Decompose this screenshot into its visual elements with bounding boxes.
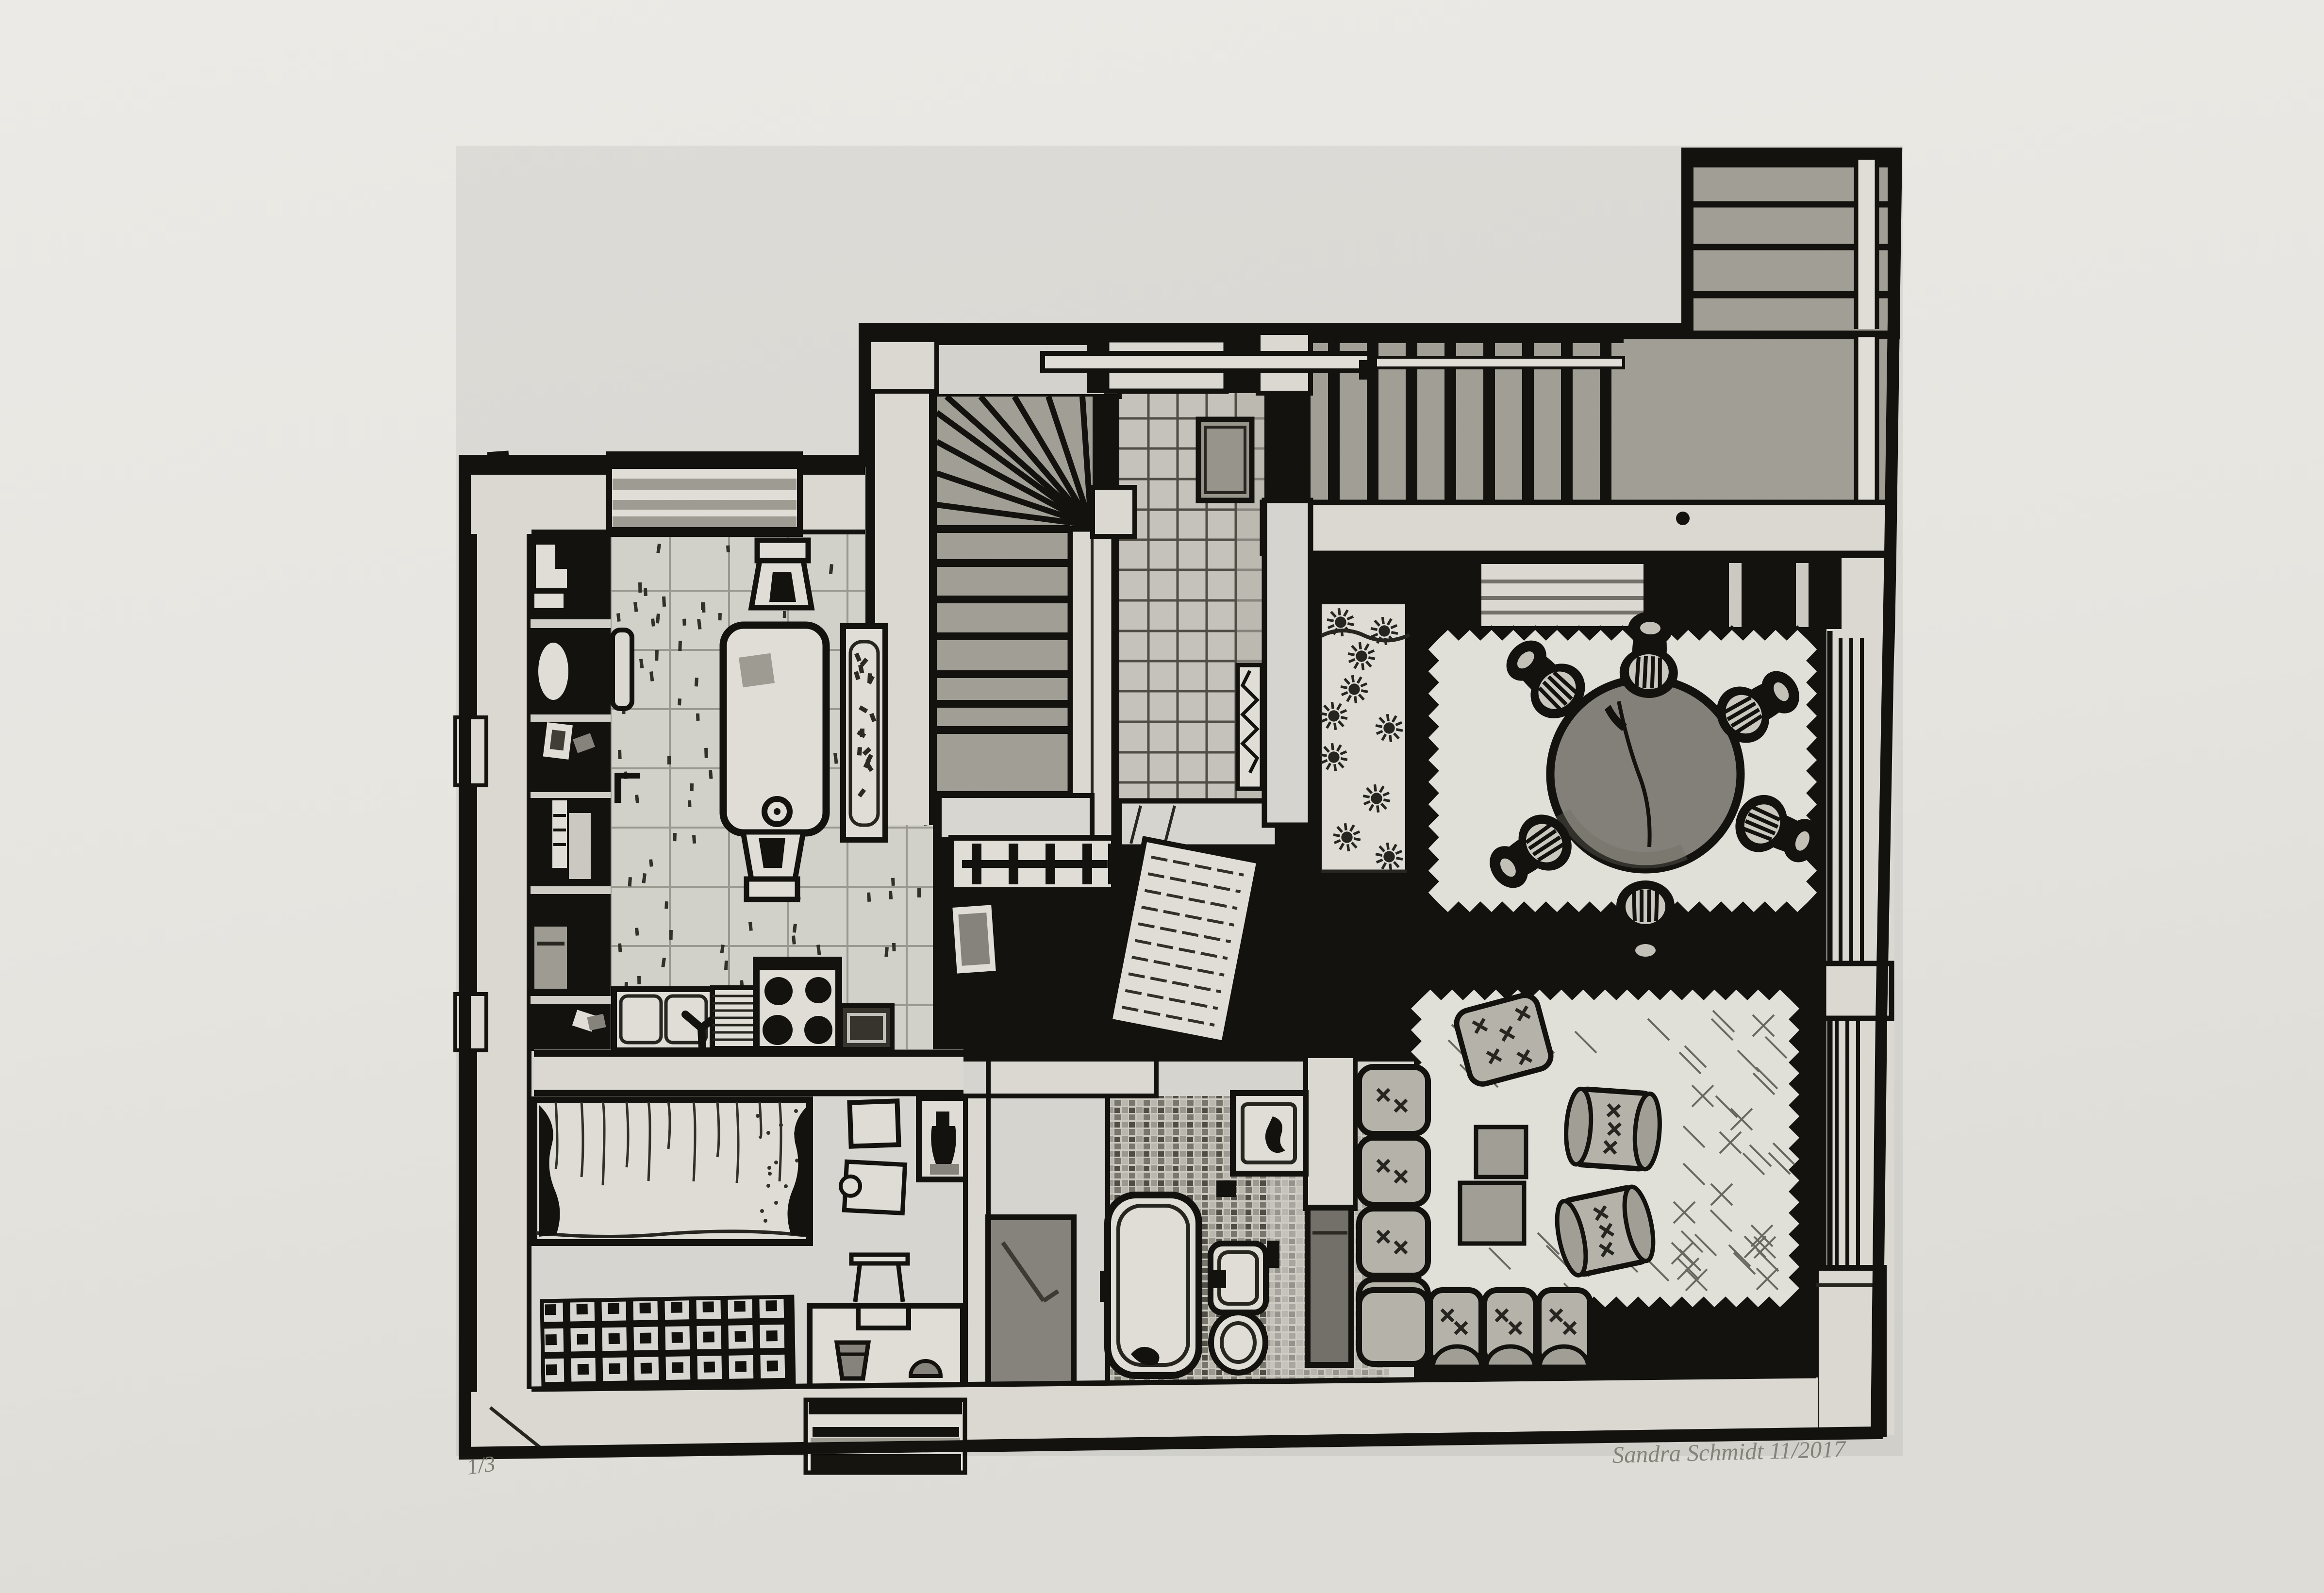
svg-text:1/3: 1/3: [465, 1451, 497, 1479]
